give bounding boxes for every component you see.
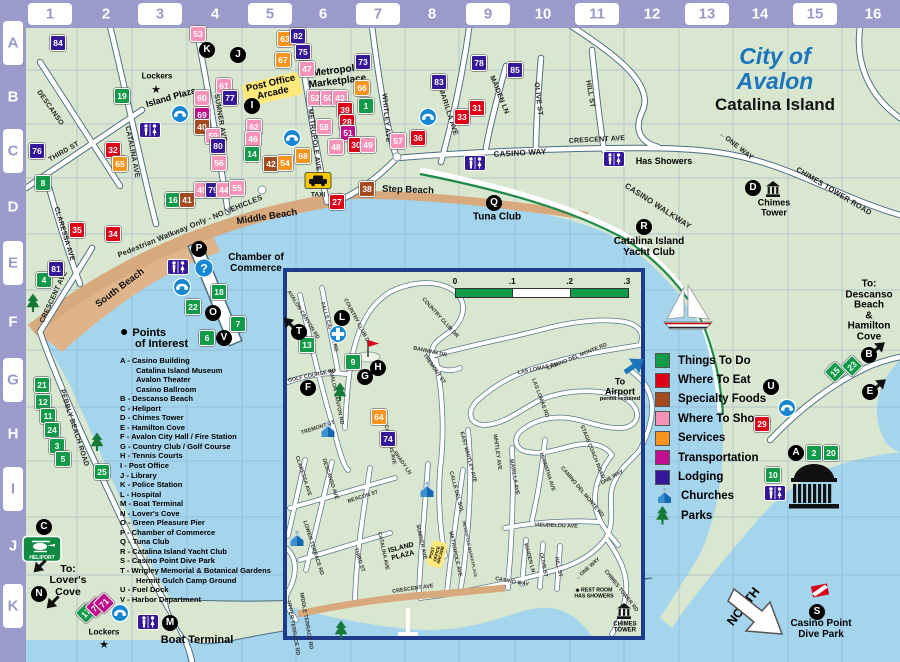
map-marker-78: 78: [471, 55, 487, 71]
restroom-icon: [167, 259, 189, 275]
church-icon: [418, 481, 437, 499]
poi-entry: G - Country Club / Golf Course: [120, 442, 295, 452]
legend-label: Specialty Foods: [678, 393, 766, 405]
map-marker-56: 56: [211, 155, 227, 171]
poi-entry: I - Post Office: [120, 461, 295, 471]
grid-row-label: B: [8, 89, 19, 106]
map-marker-19: 19: [114, 88, 130, 104]
map-marker-18: 18: [211, 284, 227, 300]
legend-color-swatch: [655, 450, 670, 465]
map-marker-5: 5: [55, 451, 71, 467]
grid-col-label: 5: [266, 6, 274, 23]
poi-marker-K: K: [199, 42, 215, 58]
map-marker-82: 82: [290, 28, 306, 44]
tree-icon: [333, 383, 348, 402]
legend-color-swatch: [655, 411, 670, 426]
grid-col-label: 11: [589, 6, 605, 23]
grid-col-label: 9: [484, 6, 492, 23]
grid-row-label: I: [11, 481, 15, 498]
map-marker-35: 35: [69, 222, 85, 238]
tower-icon: [617, 603, 631, 619]
grid-col-label: 1: [46, 6, 54, 23]
scale-segment: [455, 288, 514, 298]
grid-row-label: G: [7, 372, 19, 389]
map-marker-8: 8: [35, 175, 51, 191]
poi-marker-F: F: [300, 380, 316, 396]
grid-col-label: 10: [535, 6, 552, 23]
phone-icon: [111, 604, 130, 623]
poi-list: A - Casino BuildingCatalina Island Museu…: [120, 356, 295, 604]
map-marker-83: 83: [431, 74, 447, 90]
poi-entry: P - Chamber of Commerce: [120, 528, 295, 538]
legend: Things To DoWhere To EatSpecialty FoodsW…: [655, 351, 766, 526]
tree-icon: [90, 433, 105, 452]
legend-items: Things To DoWhere To EatSpecialty FoodsW…: [655, 351, 766, 487]
map-marker-76: 76: [29, 143, 45, 159]
permit-required: permit required: [600, 397, 640, 403]
map-marker-57: 57: [390, 133, 406, 149]
poi-heading-line2: of Interest: [120, 338, 188, 350]
legend-color-swatch: [655, 353, 670, 368]
grid-col-label: 12: [644, 6, 661, 23]
poi-entry: F - Avalon City Hall / Fire Station: [120, 432, 295, 442]
dot-icon: [392, 152, 402, 162]
casino-icon: [785, 464, 843, 510]
grid-col-label: 2: [102, 6, 110, 23]
grid-col-label: 6: [319, 6, 327, 23]
star-icon: ★: [99, 635, 109, 653]
phone-icon: [173, 278, 192, 297]
sailboat-icon: [662, 285, 714, 331]
poi-entry: A - Casino Building: [120, 356, 295, 366]
legend-label: Where To Shop: [678, 413, 761, 425]
map-marker-60: 60: [194, 90, 210, 106]
page-subtitle: Catalina Island: [700, 94, 850, 116]
legend-item: Transportation: [655, 448, 766, 467]
poi-marker-L: L: [334, 310, 350, 326]
grid-col-label: 4: [211, 6, 219, 23]
poi-entry: Q - Tuna Club: [120, 537, 295, 547]
map-marker-38: 38: [359, 181, 375, 197]
chimes-tower-inset: CHIMESTOWER: [613, 622, 636, 635]
map-marker-49: 49: [360, 137, 376, 153]
scale-tick: .2: [566, 277, 573, 286]
bullet-icon: ●: [120, 323, 132, 339]
legend-item: Where To Eat: [655, 370, 766, 389]
scale-tick: .1: [509, 277, 516, 286]
hospital-icon: [329, 325, 348, 344]
poi-entry: O - Green Pleasure Pier: [120, 518, 295, 528]
poi-marker-M: M: [162, 615, 178, 631]
map-marker-68: 68: [295, 148, 311, 164]
phone-icon: [283, 129, 302, 148]
legend-item: Services: [655, 429, 766, 448]
legend-label: Transportation: [678, 452, 759, 464]
map-marker-10: 10: [765, 467, 781, 483]
map-marker-33: 33: [454, 109, 470, 125]
poi-marker-V: V: [216, 330, 232, 346]
church-icon: [655, 487, 677, 505]
poi-marker-E: E: [862, 384, 878, 400]
poi-entry: D - Chimes Tower: [120, 413, 295, 423]
poi-entry: H - Tennis Courts: [120, 451, 295, 461]
grid-col-label: 14: [752, 6, 769, 23]
avalon-map: 12345678910111213141516ABCDEFGHIJK City …: [0, 0, 900, 662]
map-marker-41: 41: [179, 192, 195, 208]
map-marker-25: 25: [94, 464, 110, 480]
restroom-icon: [137, 614, 159, 630]
map-marker-7: 7: [230, 316, 246, 332]
grid-col-label: 15: [807, 6, 824, 23]
poi-marker-N: N: [31, 586, 47, 602]
title-block: City of Avalon Catalina Island: [700, 44, 850, 116]
map-marker-66: 66: [354, 80, 370, 96]
legend-label: Parks: [681, 510, 712, 522]
poi-entry: Hermit Gulch Camp Ground: [120, 576, 295, 586]
grid-row-label: J: [9, 538, 17, 555]
restroom-icon: [464, 155, 486, 171]
poi-entry: N - Lover's Cove: [120, 509, 295, 519]
page-title: City of Avalon: [700, 44, 850, 94]
map-marker-24: 24: [44, 422, 60, 438]
yacht-club: Catalina IslandYacht Club: [614, 237, 685, 259]
poi-marker-D: D: [745, 180, 761, 196]
grid-col-label: 3: [156, 6, 164, 23]
poi-marker-A: A: [788, 445, 804, 461]
poi-entry: U - Fuel Dock: [120, 585, 295, 595]
chimes-tower-main: ChimesTower: [758, 198, 791, 217]
poi-entry: B - Descanso Beach: [120, 394, 295, 404]
map-marker-55: 55: [229, 180, 245, 196]
map-marker-64: 64: [371, 409, 387, 425]
poi-marker-R: R: [636, 219, 652, 235]
poi-entry: J - Library: [120, 471, 295, 481]
qmark-icon: ?: [195, 259, 214, 278]
tuna-club: Tuna Club: [473, 213, 521, 224]
map-marker-31: 31: [469, 100, 485, 116]
scale-segment: [570, 288, 629, 298]
church-icon: [319, 421, 338, 439]
map-marker-73: 73: [355, 54, 371, 70]
map-marker-85: 85: [507, 62, 523, 78]
poi-marker-U: U: [763, 379, 779, 395]
tower-icon: [766, 181, 780, 197]
north-icon: [726, 585, 788, 637]
poi-entry: E - Hamilton Cove: [120, 423, 295, 433]
dive-park: Casino PointDive Park: [790, 619, 851, 641]
tree-icon: [334, 621, 349, 640]
dot-icon: [257, 185, 267, 195]
poi-entry: S - Casino Point Dive Park: [120, 556, 295, 566]
map-marker-34: 34: [105, 226, 121, 242]
legend-label: Where To Eat: [678, 374, 751, 386]
map-marker-20: 20: [823, 445, 839, 461]
map-marker-1: 1: [358, 98, 374, 114]
legend-color-swatch: [655, 431, 670, 446]
grid-row-label: H: [8, 426, 19, 443]
poi-marker-B: B: [861, 347, 877, 363]
phone-icon: [778, 399, 797, 418]
map-marker-47: 47: [299, 61, 315, 77]
scale-tick: .3: [624, 277, 631, 286]
poi-entry: T - Wrigley Memorial & Botanical Gardens: [120, 566, 295, 576]
map-marker-48: 48: [328, 139, 344, 155]
svg-text:?: ?: [200, 261, 208, 275]
star-icon: ★: [151, 80, 161, 98]
legend-item: Things To Do: [655, 351, 766, 370]
restroom-note: ◆ REST ROOMHAS SHOWERS: [574, 588, 613, 599]
poi-entry: Casino Ballroom: [120, 385, 295, 395]
map-marker-53: 53: [190, 26, 206, 42]
poi-entry: M - Boat Terminal: [120, 499, 295, 509]
map-marker-29: 29: [754, 416, 770, 432]
map-marker-67: 67: [275, 52, 291, 68]
map-marker-74: 74: [380, 431, 396, 447]
map-marker-81: 81: [48, 261, 64, 277]
map-marker-75: 75: [295, 44, 311, 60]
poi-entry: C - Heliport: [120, 404, 295, 414]
poi-marker-O: O: [205, 305, 221, 321]
grid-col-label: 16: [865, 6, 882, 23]
grid-row-label: C: [8, 143, 19, 160]
map-marker-9: 9: [345, 354, 361, 370]
poi-marker-Q: Q: [486, 195, 502, 211]
map-marker-54: 54: [277, 155, 293, 171]
poi-entry: Catalina Island Museum: [120, 366, 295, 376]
map-marker-46: 46: [245, 131, 261, 147]
grid-row-label: F: [8, 314, 17, 331]
map-marker-6: 6: [199, 330, 215, 346]
map-marker-80: 80: [210, 138, 226, 154]
map-marker-27: 27: [329, 194, 345, 210]
to-descanso: To:DescansoBeach&HamiltonCove: [845, 280, 892, 343]
poi-marker-T: T: [291, 324, 307, 340]
restroom-icon: [139, 122, 161, 138]
poi-marker-H: H: [370, 360, 386, 376]
poi-entry: K - Police Station: [120, 480, 295, 490]
map-marker-65: 65: [112, 156, 128, 172]
street-label: Step Beach: [382, 184, 434, 197]
restroom-icon: [764, 485, 786, 501]
phone-icon: [419, 108, 438, 127]
legend-color-swatch: [655, 373, 670, 388]
restroom-icon: [603, 151, 625, 167]
grid-row-label: D: [8, 199, 19, 216]
poi-marker-C: C: [36, 519, 52, 535]
legend-churches: Churches: [655, 487, 766, 506]
poi-marker-I: I: [244, 98, 260, 114]
grid-row-label: E: [8, 255, 18, 272]
grid-col-label: 8: [428, 6, 436, 23]
legend-label: Lodging: [678, 471, 723, 483]
grid-col-label: 13: [699, 6, 716, 23]
boat-terminal: Boat Terminal: [161, 635, 234, 647]
diveflag-icon: [810, 584, 830, 599]
map-marker-14: 14: [244, 146, 260, 162]
tree-icon: [655, 506, 677, 525]
map-marker-58: 58: [316, 119, 332, 135]
poi-marker-S: S: [809, 604, 825, 620]
grid-col-label: 7: [374, 6, 382, 23]
legend-parks: Parks: [655, 506, 766, 525]
map-marker-2: 2: [806, 445, 822, 461]
legend-label: Things To Do: [678, 355, 751, 367]
poi-marker-P: P: [191, 241, 207, 257]
poi-entry: V - Harbor Department: [120, 595, 295, 605]
map-marker-77: 77: [222, 90, 238, 106]
scale-segment: [512, 288, 571, 298]
legend-label: Services: [678, 432, 725, 444]
grid-row-label: K: [8, 598, 19, 615]
poi-entry: R - Catalina Island Yacht Club: [120, 547, 295, 557]
chamber-of-commerce: Chamber ofCommerce: [228, 253, 284, 275]
map-marker-84: 84: [50, 35, 66, 51]
map-marker-22: 22: [185, 299, 201, 315]
grid-row-label: A: [8, 35, 19, 52]
legend-label: Churches: [681, 490, 734, 502]
poi-entry: Avalon Theater: [120, 375, 295, 385]
phone-icon: [171, 105, 190, 124]
legend-color-swatch: [655, 392, 670, 407]
points-of-interest-panel: ● Points of Interest A - Casino Building…: [120, 326, 295, 604]
has-showers: Has Showers: [636, 157, 693, 167]
legend-color-swatch: [655, 470, 670, 485]
map-marker-21: 21: [34, 377, 50, 393]
tree-icon: [26, 294, 41, 313]
legend-item: Specialty Foods: [655, 390, 766, 409]
poi-entry: L - Hospital: [120, 490, 295, 500]
svg-text:TAXI: TAXI: [311, 192, 326, 199]
legend-item: Where To Shop: [655, 409, 766, 428]
scale-tick: 0: [453, 277, 457, 286]
legend-item: Lodging: [655, 467, 766, 486]
poi-marker-J: J: [230, 47, 246, 63]
map-marker-36: 36: [410, 130, 426, 146]
